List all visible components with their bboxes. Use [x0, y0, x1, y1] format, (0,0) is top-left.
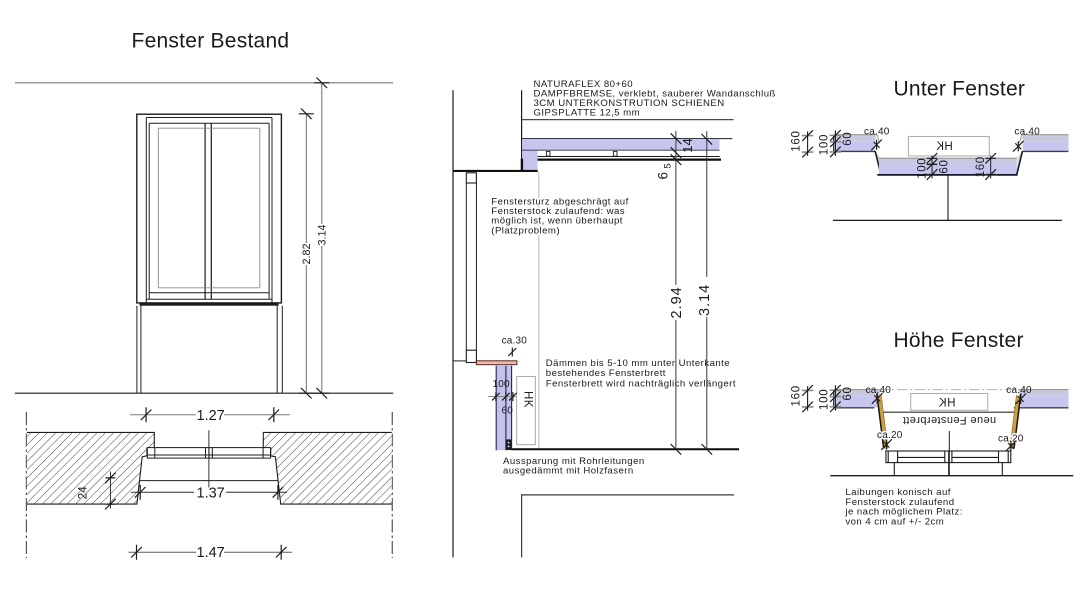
- svg-text:160: 160: [791, 385, 803, 406]
- svg-text:1.27: 1.27: [197, 408, 225, 424]
- svg-text:Fenster Bestand: Fenster Bestand: [132, 30, 290, 53]
- svg-text:2.82: 2.82: [301, 243, 313, 264]
- svg-text:ca.40: ca.40: [1006, 385, 1032, 396]
- svg-text:ca.40: ca.40: [864, 127, 890, 138]
- svg-text:HK: HK: [936, 141, 953, 153]
- svg-text:60: 60: [842, 386, 854, 400]
- svg-text:ca.40: ca.40: [1014, 127, 1040, 138]
- svg-text:ca.20: ca.20: [877, 430, 903, 441]
- svg-text:100: 100: [818, 134, 830, 155]
- svg-text:100: 100: [818, 389, 830, 410]
- svg-text:GIPSPLATTE 12,5 mm: GIPSPLATTE 12,5 mm: [534, 108, 641, 119]
- svg-text:24: 24: [77, 486, 89, 499]
- svg-text:1.47: 1.47: [197, 545, 225, 561]
- svg-text:6: 6: [656, 172, 671, 180]
- svg-text:100: 100: [917, 158, 929, 179]
- svg-text:3.14: 3.14: [697, 284, 713, 316]
- svg-text:HK: HK: [522, 391, 534, 408]
- svg-text:3.14: 3.14: [317, 224, 329, 245]
- svg-text:60: 60: [842, 132, 854, 146]
- svg-text:neue Fensterbrett: neue Fensterbrett: [902, 414, 996, 426]
- svg-text:1.37: 1.37: [197, 485, 225, 501]
- svg-text:160: 160: [975, 156, 987, 177]
- svg-text:14: 14: [680, 138, 695, 152]
- svg-text:(Platzproblem): (Platzproblem): [491, 225, 560, 236]
- svg-text:Unter Fenster: Unter Fenster: [894, 78, 1026, 101]
- svg-text:ausgedämmt mit Holzfasern: ausgedämmt mit Holzfasern: [503, 466, 634, 477]
- svg-text:5: 5: [662, 163, 673, 168]
- svg-text:von 4 cm auf +/- 2cm: von 4 cm auf +/- 2cm: [845, 516, 944, 527]
- svg-text:60: 60: [938, 159, 950, 173]
- svg-text:60: 60: [502, 406, 514, 417]
- svg-text:2.94: 2.94: [669, 286, 685, 318]
- svg-text:Höhe Fenster: Höhe Fenster: [894, 329, 1024, 352]
- svg-text:100: 100: [493, 379, 511, 390]
- svg-text:160: 160: [791, 130, 803, 151]
- svg-text:ca.40: ca.40: [866, 385, 892, 396]
- svg-text:HK: HK: [939, 398, 956, 410]
- svg-text:ca.30: ca.30: [502, 336, 528, 347]
- svg-text:Fensterbrett wird nachträglich: Fensterbrett wird nachträglich verlänger…: [546, 378, 736, 389]
